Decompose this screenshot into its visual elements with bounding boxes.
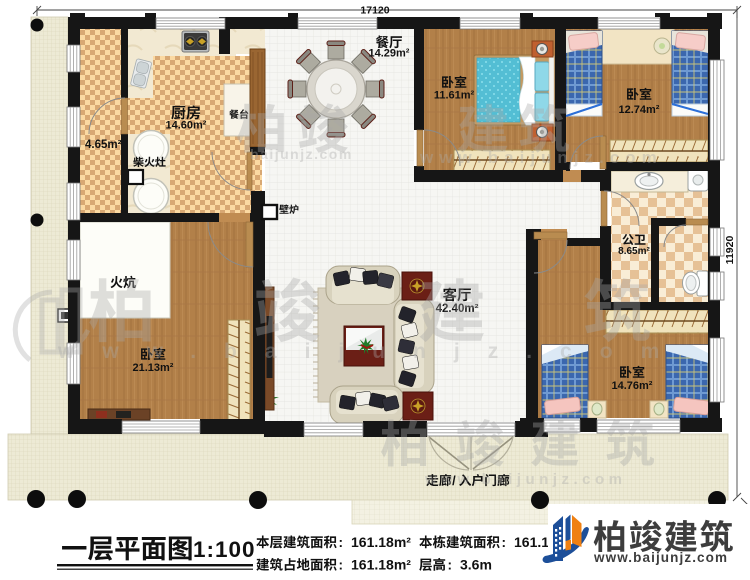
svg-text:11.61m²: 11.61m² xyxy=(434,90,475,102)
svg-text:www.baijunjz.com: www.baijunjz.com xyxy=(419,148,663,167)
svg-text::: : xyxy=(502,535,507,550)
svg-text:12.74m²: 12.74m² xyxy=(619,104,660,116)
svg-text:4.65m²: 4.65m² xyxy=(85,139,122,151)
svg-text:baijunjz.com: baijunjz.com xyxy=(250,146,353,162)
svg-text:8.65m²: 8.65m² xyxy=(618,246,650,257)
svg-text:www.baijunjz.com: www.baijunjz.com xyxy=(57,340,687,363)
svg-text::: : xyxy=(339,558,344,573)
svg-text:3.6m: 3.6m xyxy=(460,557,492,573)
svg-text::: : xyxy=(448,558,453,573)
svg-text:1:100: 1:100 xyxy=(193,537,256,562)
svg-text:11920: 11920 xyxy=(724,236,736,265)
svg-text:21.13m²: 21.13m² xyxy=(133,362,174,374)
svg-text:www.baijunjz.com: www.baijunjz.com xyxy=(424,471,626,488)
svg-text:14.29m²: 14.29m² xyxy=(369,48,410,60)
svg-text::: : xyxy=(339,535,344,550)
svg-text:14.60m²: 14.60m² xyxy=(166,120,207,132)
svg-text:17120: 17120 xyxy=(360,5,389,17)
svg-text:161.18m²: 161.18m² xyxy=(351,557,411,573)
svg-text:161.18m²: 161.18m² xyxy=(351,534,411,550)
svg-text:www.baijunjz.com: www.baijunjz.com xyxy=(593,550,728,565)
svg-text:14.76m²: 14.76m² xyxy=(612,380,653,392)
